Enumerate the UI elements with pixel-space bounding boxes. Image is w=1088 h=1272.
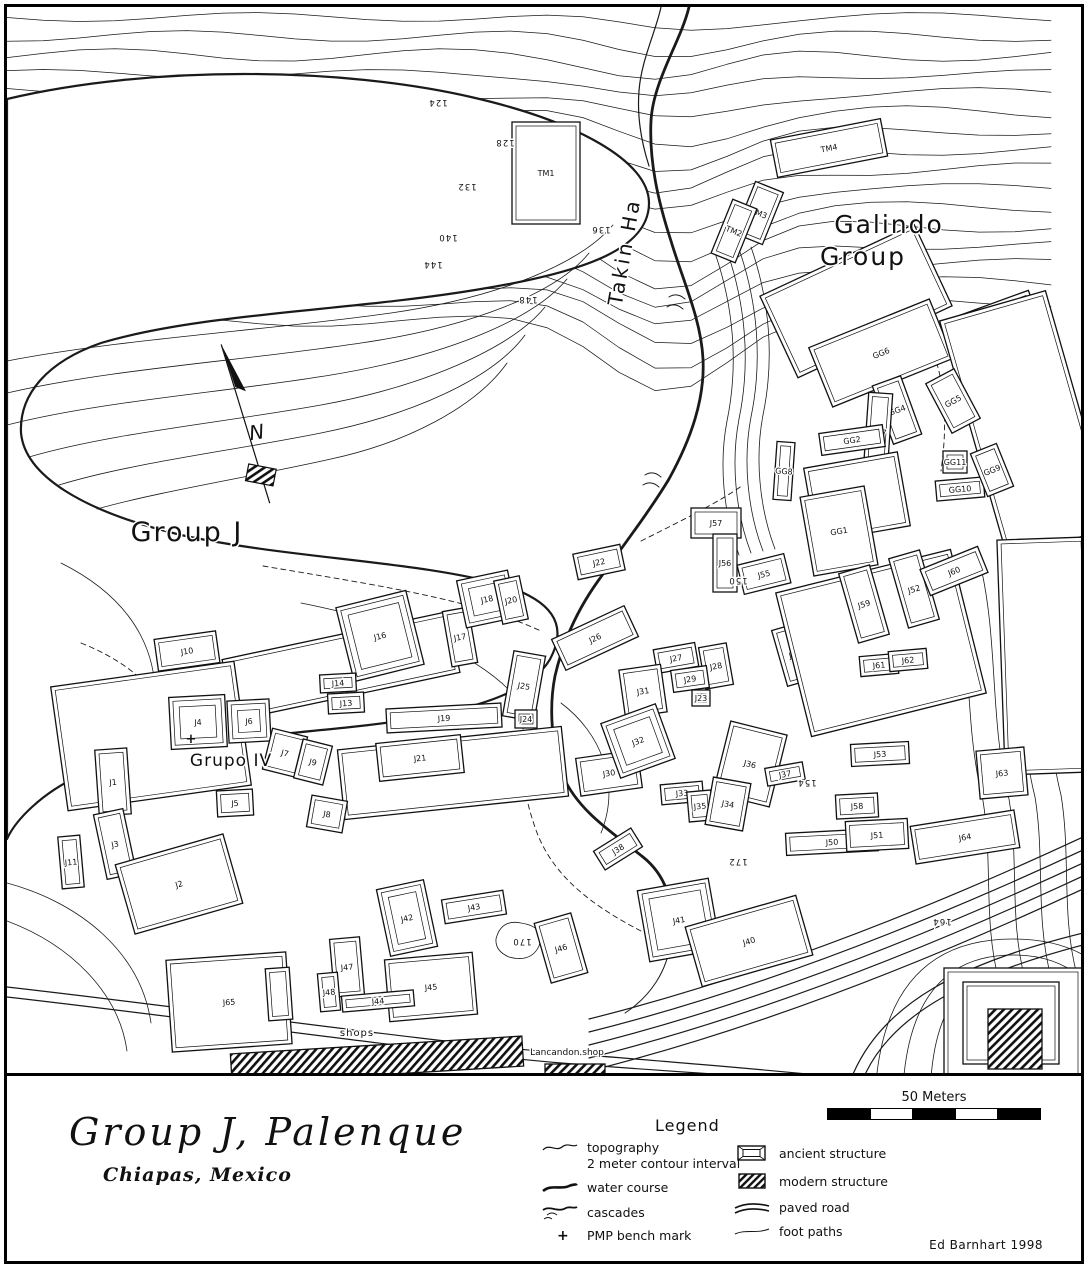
palenque-map-page: GG6GG4GG5GG7GG2GG8GG11GG10GG9GG3GG1TM1TM…: [0, 0, 1088, 1272]
structure-J24: J24: [515, 710, 537, 728]
structure-label-J62: J62: [900, 655, 914, 665]
structure-label-J21: J21: [412, 753, 426, 763]
structure-J6: J6: [227, 699, 271, 743]
contour-label-132: 132: [457, 181, 476, 191]
structure-J43: J43: [442, 890, 507, 923]
structure-J14: J14: [320, 673, 357, 693]
structure-GG11: GG11: [943, 451, 967, 473]
scale-bar-segments: [827, 1108, 1041, 1120]
legend-heading: Legend: [655, 1116, 720, 1135]
structure-label-J45: J45: [423, 982, 437, 992]
map-title: Group J, Palenque: [69, 1110, 466, 1154]
contour-label-144: 144: [423, 259, 442, 269]
modern-structure: [545, 1064, 605, 1073]
structure-label-J10: J10: [179, 646, 194, 657]
structure-J34: J34: [705, 777, 751, 831]
structure-J58: J58: [835, 793, 878, 819]
contour-label-150: 150: [728, 575, 747, 585]
structure-label-J24: J24: [519, 715, 533, 724]
legend-label: paved road: [779, 1200, 850, 1215]
structure-label-J56: J56: [718, 559, 732, 568]
structure-label-J5: J5: [230, 799, 239, 808]
structure-J2: J2: [115, 834, 243, 934]
map-frame: GG6GG4GG5GG7GG2GG8GG11GG10GG9GG3GG1TM1TM…: [4, 4, 1084, 1264]
place-label-shops: shops: [340, 1028, 374, 1039]
structure-label-TM1: TM1: [537, 169, 555, 178]
structure-label-J31: J31: [635, 686, 650, 697]
structure-label-J50: J50: [825, 838, 839, 848]
structure-J19: J19: [386, 703, 502, 733]
legend-label: modern structure: [779, 1174, 888, 1189]
map-area: GG6GG4GG5GG7GG2GG8GG11GG10GG9GG3GG1TM1TM…: [7, 7, 1081, 1076]
structure-J55: J55: [737, 554, 791, 595]
structure-label-GG11: GG11: [944, 458, 967, 467]
structure-J62: J62: [888, 648, 928, 671]
legend-item-paved-road: paved road: [733, 1198, 850, 1216]
ancient-structure-icon: [733, 1144, 771, 1162]
structure-J46: J46: [534, 913, 588, 983]
place-label-grupo-iv: Grupo IV: [190, 751, 272, 771]
structure-label-J48: J48: [321, 987, 335, 997]
structure-TM4: TM4: [770, 119, 887, 178]
paved-road-icon: [733, 1198, 771, 1216]
map-subtitle: Chiapas, Mexico: [103, 1164, 292, 1186]
structure-label-J29: J29: [682, 674, 697, 685]
structure-J48: J48: [317, 972, 340, 1012]
structure-J21: J21: [376, 735, 465, 782]
contour-label-148: 148: [518, 294, 537, 304]
structure-label-GG8: GG8: [775, 466, 793, 476]
legend-item-modern-structure: modern structure: [733, 1172, 888, 1190]
structure-label-J61: J61: [871, 660, 885, 670]
legend-item-cascades: cascades: [541, 1202, 645, 1222]
north-arrow-glyph: [245, 464, 276, 486]
structure-J23: J23: [692, 690, 710, 706]
structure-GG8: GG8: [773, 441, 795, 500]
platform-structure: [997, 537, 1081, 775]
modern-structure-icon: [733, 1172, 771, 1190]
place-label-galindo-group-line2: Group: [820, 242, 906, 271]
structure-label-J51: J51: [870, 831, 884, 841]
structure-J53: J53: [850, 741, 909, 766]
structure-J5: J5: [216, 789, 253, 817]
legend-item-water-course: water course: [541, 1178, 668, 1196]
contour-label-140: 140: [438, 232, 457, 242]
contour-label-128: 128: [495, 137, 514, 147]
contour-label-170: 170: [512, 936, 531, 946]
structure-GG1: GG1: [800, 486, 878, 576]
legend-label: cascades: [587, 1205, 645, 1220]
place-label-group-j: Group J: [131, 517, 244, 548]
contour-label-172: 172: [728, 856, 747, 866]
structure-J26: J26: [552, 606, 639, 671]
legend-item-ancient-structure: ancient structure: [733, 1144, 886, 1162]
legend-label: foot paths: [779, 1224, 843, 1239]
structure-GG10: GG10: [935, 477, 985, 501]
structure-label-J19: J19: [437, 714, 451, 724]
legend-label: PMP bench mark: [587, 1228, 691, 1243]
structure-label-J44: J44: [370, 996, 384, 1006]
structure-label-J35: J35: [692, 801, 706, 811]
contour-label-124: 124: [428, 97, 447, 107]
structure-J8: J8: [306, 795, 347, 833]
structure-J29: J29: [671, 666, 710, 693]
contour-line-icon: [541, 1138, 579, 1156]
structure-J38: J38: [594, 828, 643, 870]
structure-J45: J45: [384, 952, 477, 1021]
scale-bar: 50 Meters: [827, 1090, 1041, 1120]
structure-label-J57: J57: [709, 519, 723, 528]
site-map: GG6GG4GG5GG7GG2GG8GG11GG10GG9GG3GG1TM1TM…: [7, 7, 1081, 1073]
credit-text: Ed Barnhart 1998: [929, 1238, 1043, 1252]
place-label-galindo-group-line1: Galindo: [834, 210, 944, 239]
structure-label-J8: J8: [321, 809, 331, 819]
structure-TM1: TM1: [512, 122, 580, 224]
cascades-icon: [541, 1202, 579, 1222]
structure-label-J65: J65: [221, 998, 235, 1008]
pmp-bench-mark: +: [186, 732, 197, 747]
structure-J4: J4: [169, 695, 228, 750]
svg-text:+: +: [557, 1228, 569, 1244]
legend-item-topography: topography: [541, 1138, 659, 1156]
bench-mark-icon: +: [541, 1226, 579, 1244]
structure-label-J6: J6: [244, 717, 253, 726]
structure-J11: J11: [58, 835, 84, 889]
structure-J22: J22: [573, 544, 625, 579]
structure-label-J58: J58: [850, 802, 864, 812]
structure-label-J13: J13: [339, 699, 353, 709]
scale-bar-label: 50 Meters: [827, 1090, 1041, 1105]
structure-label-J14: J14: [331, 679, 345, 689]
contour-label-154: 154: [797, 777, 816, 787]
structure-J51: J51: [845, 818, 908, 851]
legend-item-foot-paths: foot paths: [733, 1222, 843, 1240]
legend-item-bench-mark: + PMP bench mark: [541, 1226, 691, 1244]
place-label-lancandon-shop: Lancandon shop: [530, 1048, 604, 1058]
structure-label-J53: J53: [873, 750, 887, 760]
structure-label-J11: J11: [63, 857, 77, 867]
legend-label: water course: [587, 1180, 668, 1195]
north-arrow-icon: N: [205, 339, 286, 508]
structure-J63: J63: [976, 747, 1028, 799]
structure-label-J1: J1: [108, 778, 117, 788]
north-label: N: [247, 419, 266, 445]
structure-J1: J1: [95, 748, 132, 816]
platform-structure: [265, 967, 293, 1021]
legend-sublabel-contour-interval: 2 meter contour interval: [587, 1156, 740, 1171]
modern-structure: [988, 1009, 1042, 1069]
contour-label-164: 164: [932, 916, 951, 926]
structure-label-J47: J47: [339, 962, 353, 972]
structure-label-J4: J4: [193, 718, 202, 727]
legend-label: topography: [587, 1140, 659, 1155]
structure-J42: J42: [376, 880, 437, 956]
structure-label-J63: J63: [994, 768, 1008, 778]
structure-J13: J13: [328, 692, 365, 714]
structure-label-J30: J30: [601, 768, 616, 779]
water-course-icon: [541, 1178, 579, 1196]
contour-label-136: 136: [591, 224, 610, 234]
structure-J64: J64: [910, 810, 1020, 864]
legend-label: ancient structure: [779, 1146, 886, 1161]
structure-label-J23: J23: [694, 694, 708, 703]
title-legend-panel: Group J, Palenque Chiapas, Mexico Legend…: [7, 1076, 1081, 1261]
foot-paths-icon: [733, 1222, 771, 1240]
